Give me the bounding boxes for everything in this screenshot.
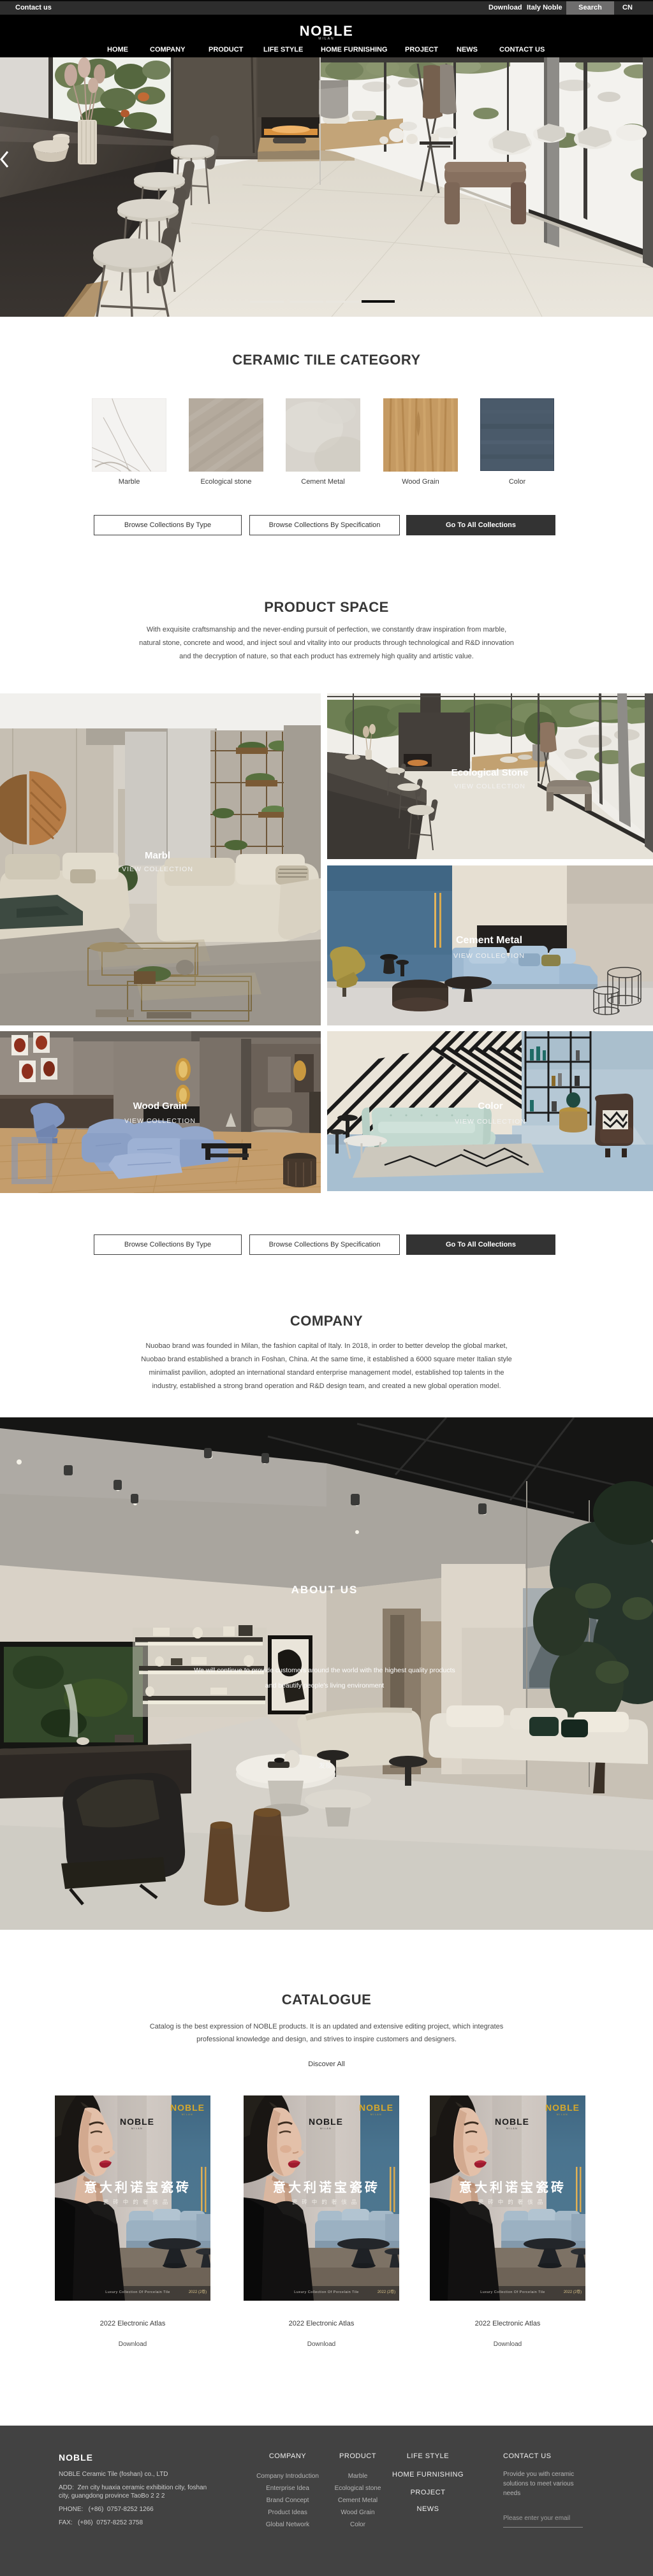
svg-text:Luxury Collection Of Porcelain: Luxury Collection Of Porcelain Tile [294, 2290, 359, 2294]
svg-text:NOBLE: NOBLE [545, 2102, 580, 2113]
svg-text:瓷砖中的奢侅品: 瓷砖中的奢侅品 [478, 2199, 548, 2205]
svg-text:Wood Grain: Wood Grain [133, 1101, 187, 1111]
svg-text:MILAN: MILAN [557, 2113, 568, 2116]
svg-text:MILAN: MILAN [131, 2127, 143, 2130]
svg-text:发现: 发现 [319, 1762, 332, 1770]
svg-text:VIEW COLLECTION: VIEW COLLECTION [453, 952, 525, 960]
svg-text:VIEW COLLECTION: VIEW COLLECTION [455, 1118, 526, 1125]
svg-text:MILAN: MILAN [320, 2127, 332, 2130]
svg-text:and beautify people's living e: and beautify people's living environment [265, 1682, 385, 1690]
svg-text:瓷砖中的奢侅品: 瓷砖中的奢侅品 [292, 2199, 362, 2205]
svg-text:NOBLE: NOBLE [495, 2117, 529, 2127]
svg-text:NOBLE: NOBLE [170, 2102, 205, 2113]
svg-text:意大利诺宝瓷砖: 意大利诺宝瓷砖 [84, 2180, 191, 2195]
svg-text:2022 (2卷): 2022 (2卷) [378, 2289, 395, 2294]
svg-text:Color: Color [478, 1101, 503, 1111]
svg-text:MILAN: MILAN [371, 2113, 382, 2116]
svg-text:Cement Metal: Cement Metal [456, 935, 522, 946]
svg-text:意大利诺宝瓷砖: 意大利诺宝瓷砖 [459, 2180, 566, 2195]
svg-text:ABOUT US: ABOUT US [291, 1584, 358, 1596]
svg-text:VIEW COLLECTION: VIEW COLLECTION [454, 783, 525, 790]
svg-text:2022 (2卷): 2022 (2卷) [189, 2289, 207, 2294]
svg-text:Ecological Stone: Ecological Stone [451, 767, 529, 778]
svg-text:NOBLE: NOBLE [309, 2117, 343, 2127]
svg-text:瓷砖中的奢侅品: 瓷砖中的奢侅品 [103, 2199, 173, 2205]
svg-text:NOBLE: NOBLE [359, 2102, 393, 2113]
svg-text:VIEW COLLECTION: VIEW COLLECTION [124, 1117, 196, 1125]
svg-text:2022 (2卷): 2022 (2卷) [564, 2289, 582, 2294]
svg-text:MILAN: MILAN [182, 2113, 193, 2116]
svg-text:NOBLE: NOBLE [120, 2117, 154, 2127]
svg-text:Marbl: Marbl [145, 850, 170, 861]
svg-text:We will continue to provide cu: We will continue to provide customers ar… [194, 1667, 455, 1674]
svg-text:MILAN: MILAN [506, 2127, 518, 2130]
svg-text:Luxury Collection Of Porcelain: Luxury Collection Of Porcelain Tile [480, 2290, 545, 2294]
svg-text:意大利诺宝瓷砖: 意大利诺宝瓷砖 [273, 2180, 380, 2195]
svg-text:VIEW COLLECTION: VIEW COLLECTION [122, 865, 193, 873]
svg-text:Luxury Collection Of Porcelain: Luxury Collection Of Porcelain Tile [105, 2290, 170, 2294]
